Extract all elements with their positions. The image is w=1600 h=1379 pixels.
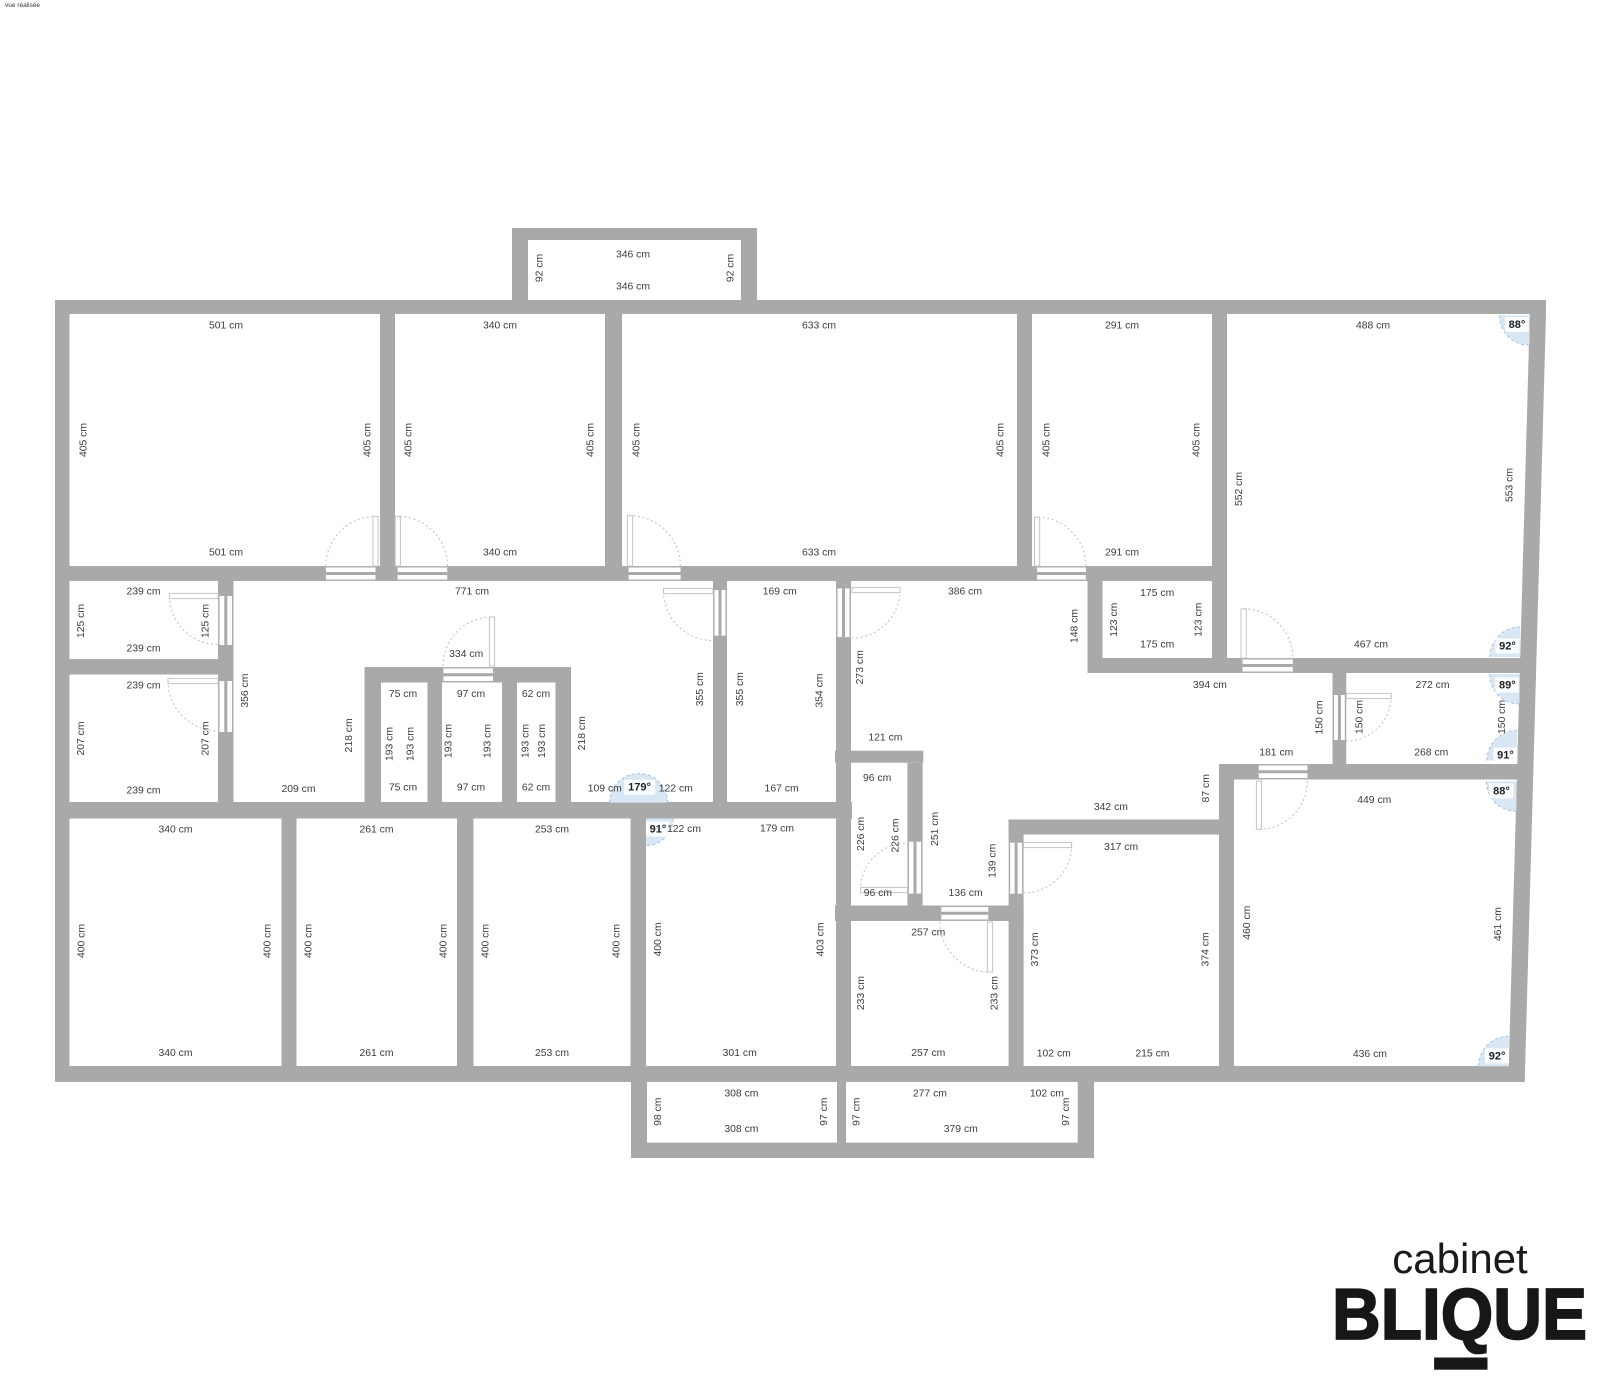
svg-text:97 cm: 97 cm	[1061, 1098, 1072, 1126]
svg-text:150 cm: 150 cm	[1497, 700, 1508, 734]
svg-text:467 cm: 467 cm	[1354, 640, 1388, 651]
svg-text:123 cm: 123 cm	[1193, 603, 1204, 637]
svg-text:193 cm: 193 cm	[443, 724, 454, 758]
svg-text:89°: 89°	[1499, 680, 1516, 692]
svg-text:75 cm: 75 cm	[389, 783, 417, 794]
svg-text:91°: 91°	[1497, 750, 1514, 762]
svg-text:400 cm: 400 cm	[439, 924, 450, 958]
svg-text:436 cm: 436 cm	[1353, 1049, 1387, 1060]
svg-text:121 cm: 121 cm	[868, 733, 902, 744]
svg-text:356 cm: 356 cm	[240, 674, 251, 708]
svg-text:62 cm: 62 cm	[522, 783, 550, 794]
svg-text:98 cm: 98 cm	[653, 1098, 664, 1126]
svg-text:193 cm: 193 cm	[482, 724, 493, 758]
svg-text:109 cm: 109 cm	[588, 783, 622, 794]
svg-text:175 cm: 175 cm	[1140, 639, 1174, 650]
svg-text:97 cm: 97 cm	[457, 689, 485, 700]
svg-text:148 cm: 148 cm	[1070, 609, 1081, 643]
svg-text:449 cm: 449 cm	[1357, 795, 1391, 806]
svg-text:253 cm: 253 cm	[535, 825, 569, 836]
svg-text:233 cm: 233 cm	[989, 976, 1000, 1010]
svg-text:257 cm: 257 cm	[911, 1048, 945, 1059]
svg-text:405 cm: 405 cm	[996, 423, 1007, 457]
svg-text:62 cm: 62 cm	[522, 689, 550, 700]
svg-text:379 cm: 379 cm	[944, 1124, 978, 1135]
svg-text:207 cm: 207 cm	[76, 721, 87, 755]
svg-text:386 cm: 386 cm	[948, 587, 982, 598]
svg-text:179 cm: 179 cm	[760, 824, 794, 835]
svg-text:340 cm: 340 cm	[158, 1048, 192, 1059]
svg-text:405 cm: 405 cm	[404, 423, 415, 457]
svg-text:181 cm: 181 cm	[1259, 748, 1293, 759]
svg-text:175 cm: 175 cm	[1140, 588, 1174, 599]
svg-text:257 cm: 257 cm	[911, 928, 945, 939]
svg-text:340 cm: 340 cm	[483, 548, 517, 559]
svg-text:340 cm: 340 cm	[483, 321, 517, 332]
svg-text:334 cm: 334 cm	[449, 649, 483, 660]
svg-text:308 cm: 308 cm	[724, 1124, 758, 1135]
svg-text:239 cm: 239 cm	[126, 681, 160, 692]
svg-text:400 cm: 400 cm	[481, 924, 492, 958]
svg-text:553 cm: 553 cm	[1505, 468, 1516, 502]
svg-text:268 cm: 268 cm	[1414, 748, 1448, 759]
svg-text:460 cm: 460 cm	[1242, 906, 1253, 940]
svg-text:193 cm: 193 cm	[521, 724, 532, 758]
svg-text:167 cm: 167 cm	[765, 783, 799, 794]
svg-text:405 cm: 405 cm	[79, 423, 90, 457]
svg-text:87 cm: 87 cm	[1201, 774, 1212, 802]
svg-text:150 cm: 150 cm	[1355, 700, 1366, 734]
svg-text:291 cm: 291 cm	[1105, 321, 1139, 332]
svg-text:97 cm: 97 cm	[457, 783, 485, 794]
svg-text:218 cm: 218 cm	[577, 716, 588, 750]
svg-text:340 cm: 340 cm	[158, 825, 192, 836]
svg-text:771 cm: 771 cm	[455, 587, 489, 598]
svg-text:233 cm: 233 cm	[856, 976, 867, 1010]
svg-text:501 cm: 501 cm	[209, 548, 243, 559]
svg-text:552 cm: 552 cm	[1234, 472, 1245, 506]
svg-text:405 cm: 405 cm	[1042, 423, 1053, 457]
svg-text:239 cm: 239 cm	[126, 587, 160, 598]
svg-text:405 cm: 405 cm	[363, 423, 374, 457]
svg-text:92°: 92°	[1489, 1050, 1506, 1062]
svg-text:400 cm: 400 cm	[77, 924, 88, 958]
svg-text:88°: 88°	[1509, 319, 1526, 331]
svg-text:273 cm: 273 cm	[855, 650, 866, 684]
svg-text:291 cm: 291 cm	[1105, 548, 1139, 559]
svg-text:403 cm: 403 cm	[816, 922, 827, 956]
svg-text:226 cm: 226 cm	[890, 818, 901, 852]
svg-text:355 cm: 355 cm	[695, 672, 706, 706]
svg-text:346 cm: 346 cm	[616, 250, 650, 261]
svg-text:354 cm: 354 cm	[815, 674, 826, 708]
svg-text:272 cm: 272 cm	[1415, 680, 1449, 691]
svg-text:123 cm: 123 cm	[1109, 603, 1120, 637]
svg-text:96 cm: 96 cm	[864, 888, 892, 899]
svg-text:261 cm: 261 cm	[359, 825, 393, 836]
svg-text:92 cm: 92 cm	[726, 254, 737, 282]
svg-text:346 cm: 346 cm	[616, 282, 650, 293]
svg-text:226 cm: 226 cm	[856, 817, 867, 851]
svg-text:405 cm: 405 cm	[1192, 423, 1203, 457]
svg-text:209 cm: 209 cm	[281, 784, 315, 795]
svg-text:88°: 88°	[1493, 786, 1510, 798]
svg-text:92 cm: 92 cm	[535, 254, 546, 282]
svg-text:633 cm: 633 cm	[802, 548, 836, 559]
svg-text:394 cm: 394 cm	[1193, 680, 1227, 691]
svg-text:122 cm: 122 cm	[659, 783, 693, 794]
svg-text:91°: 91°	[650, 824, 667, 836]
svg-text:400 cm: 400 cm	[263, 924, 274, 958]
svg-text:102 cm: 102 cm	[1037, 1048, 1071, 1059]
svg-text:139 cm: 139 cm	[988, 844, 999, 878]
svg-text:277 cm: 277 cm	[913, 1088, 947, 1099]
svg-text:253 cm: 253 cm	[535, 1048, 569, 1059]
svg-text:374 cm: 374 cm	[1200, 932, 1211, 966]
svg-text:301 cm: 301 cm	[723, 1048, 757, 1059]
svg-text:207 cm: 207 cm	[201, 721, 212, 755]
svg-text:150 cm: 150 cm	[1315, 700, 1326, 734]
svg-text:400 cm: 400 cm	[612, 924, 623, 958]
svg-text:251 cm: 251 cm	[930, 812, 941, 846]
svg-text:461 cm: 461 cm	[1493, 907, 1504, 941]
svg-text:122 cm: 122 cm	[667, 824, 701, 835]
svg-text:125 cm: 125 cm	[201, 604, 212, 638]
svg-text:400 cm: 400 cm	[304, 924, 315, 958]
svg-text:96 cm: 96 cm	[863, 773, 891, 784]
svg-text:405 cm: 405 cm	[586, 423, 597, 457]
svg-text:239 cm: 239 cm	[126, 644, 160, 655]
svg-text:102 cm: 102 cm	[1030, 1088, 1064, 1099]
svg-text:239 cm: 239 cm	[126, 786, 160, 797]
svg-text:92°: 92°	[1499, 641, 1516, 653]
svg-text:501 cm: 501 cm	[209, 321, 243, 332]
svg-text:97 cm: 97 cm	[851, 1098, 862, 1126]
svg-text:308 cm: 308 cm	[724, 1088, 758, 1099]
svg-text:193 cm: 193 cm	[537, 724, 548, 758]
svg-text:169 cm: 169 cm	[763, 587, 797, 598]
svg-text:488 cm: 488 cm	[1356, 321, 1390, 332]
svg-text:BLIQUE: BLIQUE	[1332, 1274, 1587, 1355]
svg-text:vue réalisée: vue réalisée	[5, 2, 40, 9]
svg-text:373 cm: 373 cm	[1030, 932, 1041, 966]
svg-text:342 cm: 342 cm	[1094, 802, 1128, 813]
svg-text:400 cm: 400 cm	[653, 922, 664, 956]
svg-text:125 cm: 125 cm	[76, 604, 87, 638]
svg-text:405 cm: 405 cm	[632, 423, 643, 457]
svg-text:633 cm: 633 cm	[802, 321, 836, 332]
svg-text:355 cm: 355 cm	[735, 672, 746, 706]
svg-text:215 cm: 215 cm	[1135, 1048, 1169, 1059]
svg-text:193 cm: 193 cm	[406, 727, 417, 761]
svg-text:179°: 179°	[628, 782, 651, 794]
svg-text:317 cm: 317 cm	[1104, 842, 1138, 853]
svg-text:75 cm: 75 cm	[389, 689, 417, 700]
svg-text:261 cm: 261 cm	[359, 1048, 393, 1059]
svg-text:136 cm: 136 cm	[949, 888, 983, 899]
svg-text:218 cm: 218 cm	[344, 718, 355, 752]
svg-text:193 cm: 193 cm	[385, 727, 396, 761]
svg-text:97 cm: 97 cm	[819, 1098, 830, 1126]
